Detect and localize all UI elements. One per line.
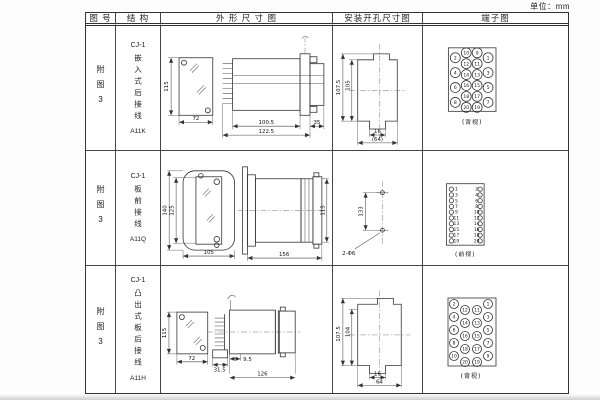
dim-front-height: 115: [162, 328, 168, 338]
dim-front-width: 72: [192, 116, 199, 122]
svg-text:5: 5: [487, 85, 490, 91]
row1-terminal-diagram: 2468101214161820911131517191357 (背视): [423, 26, 568, 151]
dim-front-height: 115: [164, 81, 170, 91]
svg-text:2: 2: [453, 302, 456, 308]
svg-text:19: 19: [474, 360, 480, 366]
svg-text:20: 20: [463, 105, 469, 111]
svg-text:13: 13: [474, 321, 480, 327]
dim-front-width: 72: [188, 356, 195, 362]
fig-label: 附图3: [95, 307, 106, 353]
svg-text:16: 16: [463, 83, 469, 89]
view-caption: (背视): [462, 118, 482, 126]
fig-label: 附图3: [95, 65, 106, 111]
svg-text:19: 19: [454, 238, 460, 244]
row1-mounting-drawing: 107.5 105 16 (64): [333, 26, 423, 151]
terminal-circles: 2468101214161820111315171913579: [450, 300, 493, 367]
row3-structure: CJ-1 凸出式板后接线 A11H: [116, 266, 161, 393]
svg-text:18: 18: [462, 347, 468, 353]
dim-cutout-outer-h: 107.5: [336, 326, 342, 342]
side-view: 9.5 31.5 126: [207, 295, 300, 378]
row2-terminal-diagram: 1234567891011121314151617181920 (前视): [423, 151, 568, 266]
svg-text:3: 3: [455, 193, 458, 199]
svg-text:9: 9: [455, 210, 458, 216]
dim-length: 156: [279, 252, 290, 258]
svg-text:9: 9: [476, 50, 479, 56]
structure-desc: 板前接线: [133, 185, 144, 231]
svg-text:15: 15: [474, 83, 480, 89]
header-structure: 结 构: [116, 13, 161, 26]
svg-text:19: 19: [474, 105, 480, 111]
dim-slot-width: 16: [374, 129, 381, 135]
svg-text:17: 17: [474, 94, 480, 100]
dim-total-width: (64): [372, 137, 383, 143]
model-label: CJ-1: [131, 173, 146, 180]
svg-text:7: 7: [487, 100, 490, 106]
dim-inner-height: 125: [170, 205, 176, 215]
svg-text:1: 1: [455, 187, 458, 193]
svg-text:20: 20: [462, 360, 468, 366]
structure-desc: 凸出式板后接线: [133, 289, 144, 370]
row2-fig-no: 附图3: [86, 151, 116, 266]
row3-outline-drawing: 115 72 9.5: [161, 266, 333, 393]
row3-fig-no: 附图3: [86, 266, 116, 393]
dim-stub: 9.5: [243, 357, 252, 363]
row2-structure: CJ-1 板前接线 A11Q: [116, 151, 161, 266]
svg-text:18: 18: [463, 94, 469, 100]
svg-text:2: 2: [454, 55, 457, 61]
page-edge-shadow: [0, 394, 600, 400]
dim-flange: 35: [313, 120, 320, 126]
dim-cutout-inner-h: 105: [345, 80, 351, 90]
dim-length: 126: [257, 372, 268, 378]
svg-text:3: 3: [487, 70, 490, 76]
fig-label: 附图3: [95, 185, 106, 231]
header-outline: 外 形 尺 寸 图: [161, 13, 333, 26]
svg-text:4: 4: [454, 70, 457, 76]
model-label: CJ-1: [131, 277, 146, 284]
row2-outline-drawing: 140 125 105: [161, 151, 333, 266]
terminal-circles: 2468101214161820911131517191357: [450, 48, 493, 112]
dim-outer-height: 140: [163, 205, 169, 216]
dim-total-width: 64: [376, 379, 383, 385]
side-view: 100.5 122.5 35: [223, 36, 324, 138]
svg-text:6: 6: [453, 328, 456, 334]
svg-text:14: 14: [463, 72, 469, 78]
dim-cutout-inner-h: 104: [345, 326, 351, 337]
front-view: 115 72: [164, 58, 213, 125]
structure-desc: 嵌入式后接线: [133, 54, 144, 123]
row2-mounting-drawing: 133 2-Φ6: [333, 151, 423, 266]
svg-text:12: 12: [462, 308, 468, 314]
svg-text:8: 8: [454, 100, 457, 106]
front-view: 115 72: [162, 312, 208, 365]
svg-text:3: 3: [487, 315, 490, 321]
unit-label: 单位：mm: [530, 1, 570, 12]
svg-text:1: 1: [487, 302, 490, 308]
row3-mounting-drawing: 107.5 104 16 64: [333, 266, 423, 393]
row1-outline-drawing: 115 72 100.5: [161, 26, 333, 151]
svg-text:17: 17: [474, 347, 480, 353]
front-view: 140 125 105: [163, 171, 235, 259]
svg-text:15: 15: [474, 334, 480, 340]
svg-text:11: 11: [454, 215, 460, 221]
model-label: CJ-1: [131, 42, 146, 49]
dim-slot-width: 16: [374, 371, 381, 377]
view-caption: (背视): [461, 372, 482, 380]
svg-text:10: 10: [463, 50, 469, 56]
dim-cutout-outer-h: 107.5: [336, 80, 342, 96]
dimension-table: 图 号 结 构 外 形 尺 寸 图 安装开孔尺寸图 端子图 附图3 CJ-1 嵌…: [85, 12, 569, 394]
row1-structure: CJ-1 嵌入式后接线 A11K: [116, 26, 161, 151]
type-code: A11Q: [130, 236, 146, 243]
terminal-circles: 1234567891011121314151617181920: [449, 187, 482, 245]
view-caption: (前视): [455, 250, 475, 258]
svg-text:11: 11: [474, 61, 480, 67]
svg-text:10: 10: [451, 354, 457, 360]
header-mounting: 安装开孔尺寸图: [333, 13, 423, 26]
dim-body-length: 100.5: [259, 120, 275, 126]
svg-text:14: 14: [462, 321, 468, 327]
svg-text:8: 8: [453, 341, 456, 347]
dim-side-height: 115: [320, 205, 326, 215]
row1-fig-no: 附图3: [86, 26, 116, 151]
header-fig-no: 图 号: [86, 13, 116, 26]
dim-width: 105: [204, 250, 214, 256]
svg-text:9: 9: [487, 354, 490, 360]
svg-text:1: 1: [487, 55, 490, 61]
svg-text:15: 15: [454, 227, 460, 233]
svg-text:7: 7: [455, 204, 458, 210]
hole-spec-label: 2-Φ6: [342, 251, 356, 257]
svg-text:11: 11: [474, 308, 480, 314]
dim-hole-pitch: 133: [359, 206, 365, 217]
svg-text:16: 16: [462, 334, 468, 340]
manual-page: 单位：mm 图 号 结 构 外 形 尺 寸 图 安装开孔尺寸图 端子图 附图3 …: [0, 0, 600, 400]
dim-total-length: 122.5: [259, 129, 275, 135]
type-code: A11K: [130, 128, 145, 135]
svg-text:17: 17: [454, 233, 460, 239]
svg-text:13: 13: [454, 221, 460, 227]
svg-text:7: 7: [487, 341, 490, 347]
type-code: A11H: [130, 375, 146, 382]
svg-text:13: 13: [474, 72, 480, 78]
row3-terminal-diagram: 2468101214161820111315171913579 (背视): [423, 266, 568, 393]
svg-text:5: 5: [487, 328, 490, 334]
svg-text:6: 6: [454, 85, 457, 91]
side-view: 156 115: [238, 167, 329, 261]
header-terminal: 端子图: [423, 13, 568, 26]
svg-text:4: 4: [453, 315, 456, 321]
dim-tab: 31.5: [214, 368, 226, 374]
svg-text:12: 12: [463, 61, 469, 67]
svg-text:5: 5: [455, 198, 458, 204]
